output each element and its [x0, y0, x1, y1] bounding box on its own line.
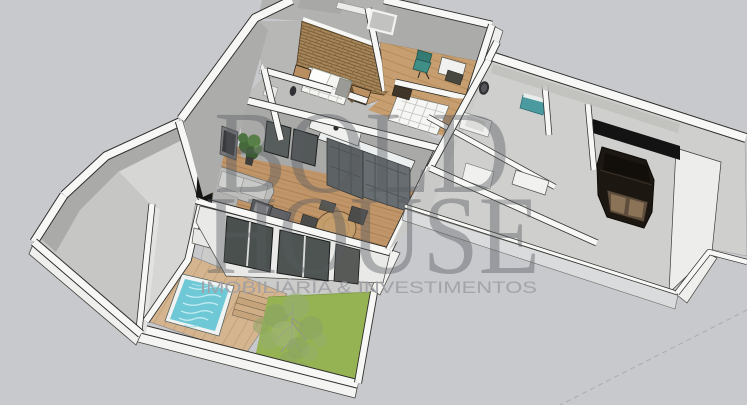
svg-text:IMOBILIÁRIA & INVESTIMENTOS: IMOBILIÁRIA & INVESTIMENTOS — [200, 278, 537, 297]
